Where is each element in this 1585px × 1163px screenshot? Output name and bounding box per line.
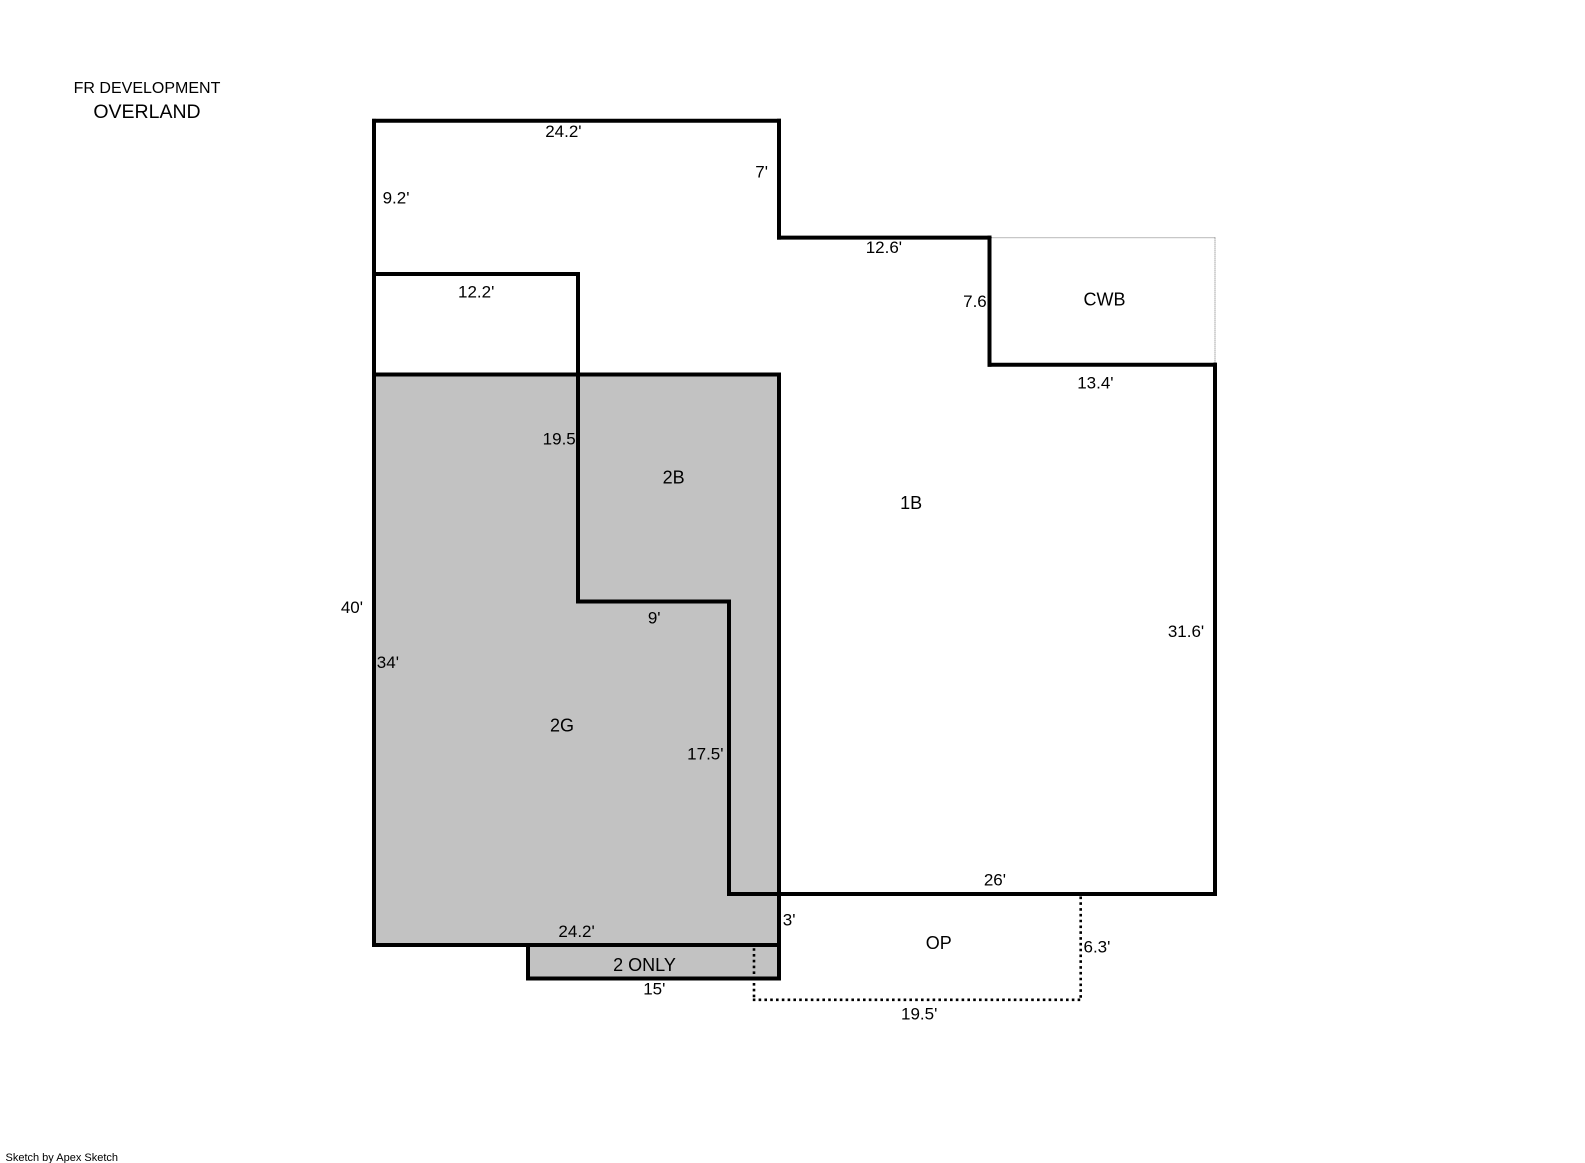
svg-text:24.2': 24.2' (558, 922, 594, 941)
svg-text:7.6': 7.6' (963, 292, 990, 311)
svg-text:19.5': 19.5' (543, 429, 579, 448)
svg-text:9': 9' (648, 609, 661, 628)
svg-text:2B: 2B (663, 467, 685, 487)
svg-text:19.5': 19.5' (901, 1004, 937, 1023)
svg-text:1B: 1B (900, 493, 922, 513)
svg-text:FR DEVELOPMENT: FR DEVELOPMENT (74, 80, 221, 97)
svg-text:40': 40' (341, 598, 363, 617)
svg-text:9.2': 9.2' (383, 188, 410, 207)
svg-text:15': 15' (643, 980, 665, 999)
svg-text:OVERLAND: OVERLAND (93, 101, 200, 123)
svg-text:34': 34' (377, 653, 399, 672)
svg-text:2 ONLY: 2 ONLY (613, 955, 676, 975)
svg-text:13.4': 13.4' (1077, 373, 1113, 392)
svg-text:3': 3' (783, 910, 796, 929)
svg-text:Sketch by Apex Sketch: Sketch by Apex Sketch (6, 1152, 119, 1163)
svg-text:26': 26' (984, 871, 1006, 890)
svg-text:31.6': 31.6' (1168, 622, 1204, 641)
svg-text:CWB: CWB (1084, 290, 1126, 310)
svg-text:OP: OP (926, 933, 952, 953)
svg-text:12.2': 12.2' (458, 283, 494, 302)
svg-text:12.6': 12.6' (866, 238, 902, 257)
svg-text:7': 7' (755, 162, 768, 181)
svg-text:24.2': 24.2' (545, 122, 581, 141)
svg-text:6.3': 6.3' (1084, 937, 1111, 956)
svg-text:17.5': 17.5' (687, 745, 723, 764)
svg-text:2G: 2G (550, 716, 574, 736)
